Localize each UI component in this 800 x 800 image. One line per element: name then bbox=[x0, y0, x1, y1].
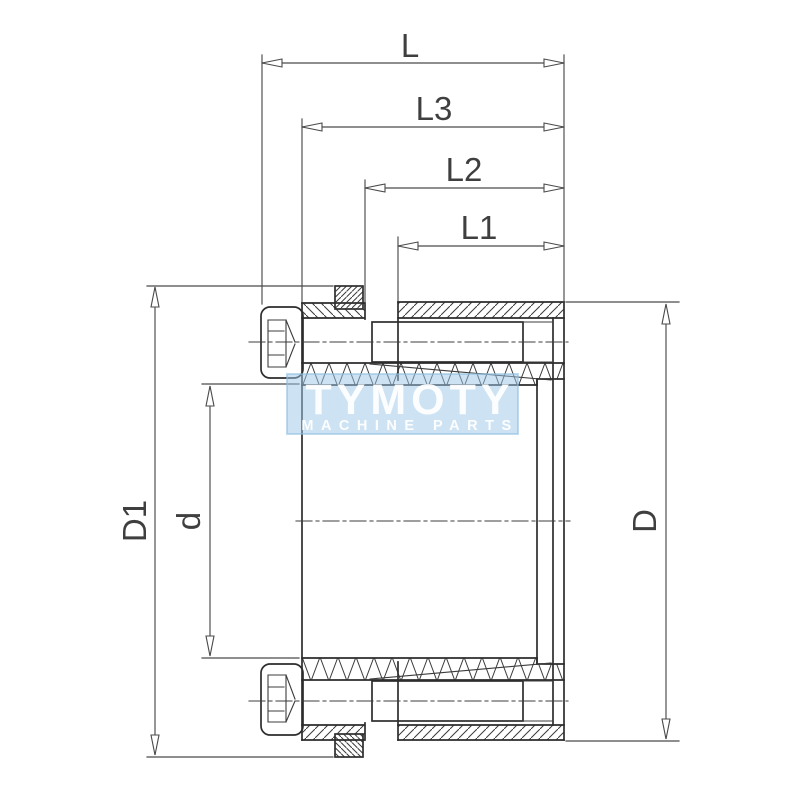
outer-ring-section-top bbox=[398, 302, 564, 318]
dim-label-D: D bbox=[626, 509, 663, 533]
dim-label-L3: L3 bbox=[416, 90, 453, 127]
dim-label-L: L bbox=[401, 27, 419, 64]
dimension-L3: L3 bbox=[302, 90, 564, 131]
dimension-L2: L2 bbox=[365, 151, 564, 192]
dim-label-L1: L1 bbox=[461, 209, 498, 246]
locking-assembly-technical-drawing: L L3 L2 L1 D1 bbox=[0, 0, 800, 800]
dimension-L1: L1 bbox=[398, 209, 564, 250]
dimension-L: L bbox=[262, 27, 564, 67]
watermark-title: TYMOTY bbox=[305, 376, 514, 424]
watermark-subtitle: MACHINE PARTS bbox=[301, 418, 518, 434]
collar-block-top bbox=[335, 286, 363, 309]
dimension-D1: D1 bbox=[116, 287, 159, 755]
watermark: TYMOTY MACHINE PARTS bbox=[287, 374, 519, 434]
dimension-d: d bbox=[170, 386, 214, 656]
dim-label-d: d bbox=[170, 512, 207, 530]
dimension-D: D bbox=[626, 304, 670, 739]
dim-label-D1: D1 bbox=[116, 500, 153, 542]
collar-block-bottom bbox=[335, 734, 363, 757]
page: L L3 L2 L1 D1 bbox=[0, 0, 800, 800]
taper-interface-bottom bbox=[302, 658, 564, 680]
outer-ring-section-bottom bbox=[398, 725, 564, 740]
dim-label-L2: L2 bbox=[446, 151, 483, 188]
